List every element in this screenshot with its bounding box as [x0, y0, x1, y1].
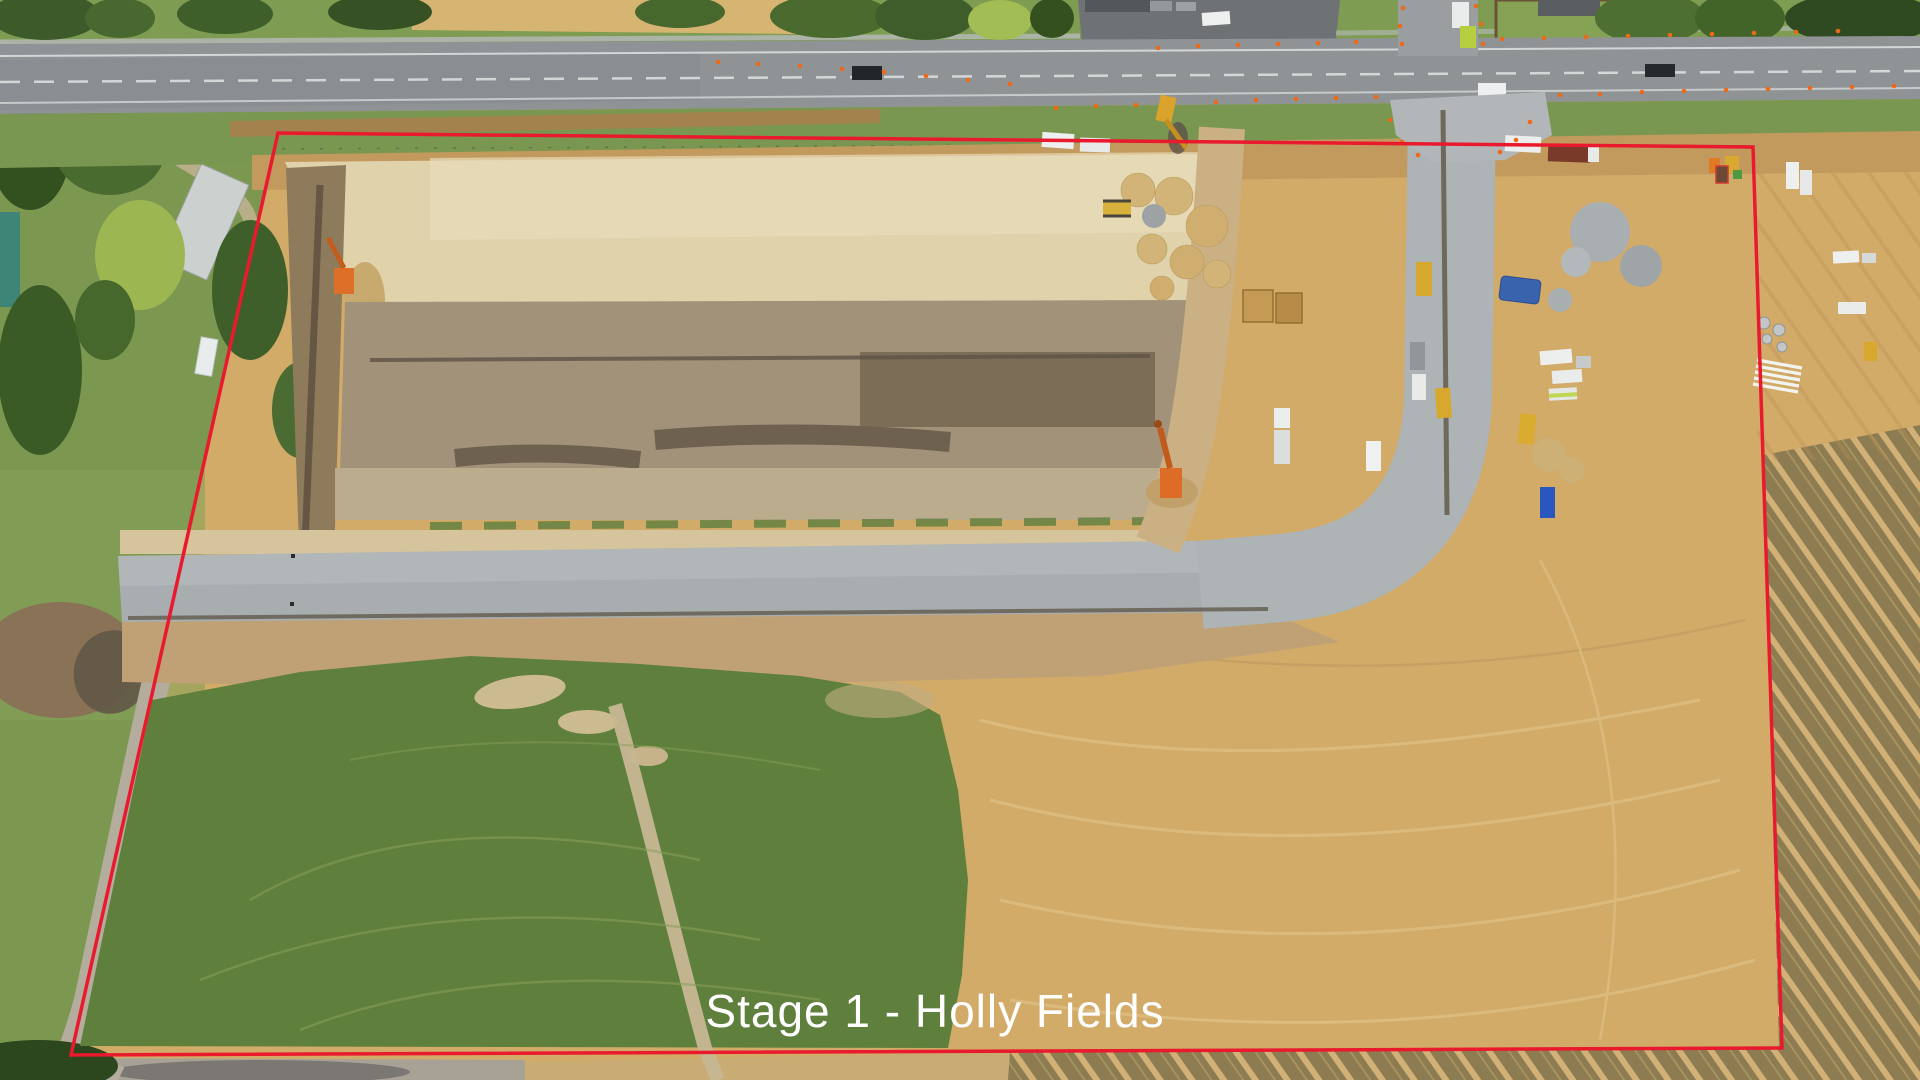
stage-label: Stage 1 - Holly Fields: [705, 984, 1164, 1038]
parked-gray-car: [1150, 1, 1172, 11]
traffic-cone: [1134, 103, 1139, 108]
traffic-cone: [1398, 24, 1403, 29]
traffic-cone: [1640, 90, 1645, 95]
white-van-outside: [1838, 302, 1866, 314]
traffic-cone: [1500, 37, 1505, 42]
gray-truck: [1410, 342, 1425, 370]
traffic-cone: [1766, 87, 1771, 92]
traffic-cone: [840, 67, 845, 72]
white-van: [1412, 374, 1426, 400]
trailer: [1576, 356, 1591, 368]
traffic-cone: [1276, 42, 1281, 47]
stubble-light-area: [1757, 140, 1920, 460]
scraped-patch: [558, 710, 618, 734]
traffic-cone: [1584, 35, 1589, 40]
topsoil-windrow: [455, 453, 640, 460]
top-stubble-patch: [408, 0, 800, 34]
lime-traffic-truck: [1460, 26, 1476, 48]
traffic-cone: [1598, 92, 1603, 97]
graded-subgrade-band: [335, 468, 1163, 520]
traffic-cone: [1054, 106, 1059, 111]
sand-pile: [1559, 457, 1585, 483]
mini-digger: [1864, 342, 1877, 361]
tree-cluster: [968, 0, 1032, 40]
gray-aggregate-pile: [1142, 204, 1166, 228]
flatbed-truck-load: [1548, 145, 1591, 162]
traffic-cone: [1808, 86, 1813, 91]
topsoil-windrow: [655, 434, 950, 442]
traffic-cone: [1400, 42, 1405, 47]
traffic-cone: [1668, 33, 1673, 38]
traffic-cone: [1836, 29, 1841, 34]
traffic-cone: [1214, 100, 1219, 105]
traffic-cone: [1388, 118, 1393, 123]
gravel-pile: [1620, 245, 1662, 287]
parked-gray-car: [1176, 2, 1196, 11]
bulldozer-body: [1103, 200, 1131, 217]
traffic-cone: [1724, 88, 1729, 93]
white-ute: [1552, 369, 1583, 384]
aerial-photo: Stage 1 - Holly Fields: [0, 0, 1920, 1080]
traffic-cone: [882, 70, 887, 75]
white-ute-outside: [1786, 162, 1799, 189]
traffic-cone: [1196, 44, 1201, 49]
yellow-digger: [1435, 387, 1452, 418]
red-framed-bin: [1716, 166, 1728, 183]
black-suv: [1645, 64, 1675, 77]
wheel-loader: [1517, 413, 1536, 445]
traffic-cone: [1514, 138, 1519, 143]
white-van: [1539, 349, 1572, 366]
excavator-bucket: [1154, 420, 1162, 428]
flatbed-truck-cab: [1588, 147, 1599, 162]
traffic-cone: [1850, 85, 1855, 90]
white-ute-trailer: [1833, 250, 1860, 263]
traffic-cone: [1558, 93, 1563, 98]
sand-pile: [1203, 260, 1231, 288]
blue-tarp-stack: [1499, 276, 1542, 305]
traffic-cone: [1401, 6, 1406, 11]
white-truck-sideroad: [1452, 2, 1469, 28]
traffic-cone: [1479, 22, 1484, 27]
traffic-cone: [1528, 120, 1533, 125]
white-car: [1366, 441, 1381, 471]
bulldozer: [1103, 200, 1131, 217]
gravel-pile: [1548, 288, 1572, 312]
sand-pile: [1137, 234, 1167, 264]
traffic-cone: [1316, 41, 1321, 46]
traffic-cone: [966, 78, 971, 83]
traffic-cone: [1254, 98, 1259, 103]
excavator-body: [1160, 468, 1182, 498]
sand-pile: [1186, 205, 1228, 247]
traffic-cone: [1008, 82, 1013, 87]
tree-cluster: [212, 220, 288, 360]
parked-white-car: [1202, 11, 1231, 26]
traffic-cone: [1374, 95, 1379, 100]
white-truck-cab: [1274, 408, 1290, 428]
traffic-cone: [1710, 32, 1715, 37]
dark-topsoil-zone: [860, 352, 1155, 427]
pale-pad-highlight: [430, 152, 1205, 240]
survey-mark: [290, 602, 294, 606]
trailer: [1862, 253, 1876, 263]
scraped-patch: [825, 682, 935, 718]
black-van: [852, 66, 882, 80]
survey-mark: [291, 554, 295, 558]
traffic-cone: [1354, 40, 1359, 45]
manhole-riser: [1762, 334, 1772, 344]
house-teal-roof: [0, 212, 20, 307]
tree-cluster: [75, 280, 135, 360]
traffic-cone: [1236, 43, 1241, 48]
traffic-cone: [1498, 150, 1503, 155]
green-plant: [1733, 170, 1742, 179]
traffic-cone: [1752, 31, 1757, 36]
traffic-cone: [1682, 89, 1687, 94]
gravel-pile: [1561, 247, 1591, 277]
traffic-cone: [756, 62, 761, 67]
traffic-cone: [1294, 97, 1299, 102]
house-roof: [1538, 0, 1600, 16]
traffic-cone: [1481, 42, 1486, 47]
white-truck-body: [1274, 430, 1290, 464]
traffic-cone: [1626, 34, 1631, 39]
blue-car: [1540, 487, 1555, 518]
traffic-cone: [1892, 84, 1897, 89]
traffic-cone: [924, 74, 929, 79]
excavator-body: [334, 268, 354, 294]
white-van-outside: [1800, 170, 1812, 195]
house-roof: [1085, 0, 1150, 12]
traffic-cone: [1542, 36, 1547, 41]
timber-frame: [1243, 290, 1273, 322]
manhole-riser: [1773, 324, 1785, 336]
traffic-cone: [1156, 46, 1161, 51]
sand-pile: [1170, 245, 1204, 279]
manhole-riser: [1777, 342, 1787, 352]
traffic-cone: [1416, 153, 1421, 158]
traffic-cone: [1334, 96, 1339, 101]
traffic-cone: [1474, 4, 1479, 9]
sand-pile: [1150, 276, 1174, 300]
traffic-cone: [1094, 104, 1099, 109]
white-ute-on-road: [1478, 83, 1506, 96]
traffic-cone: [798, 64, 803, 69]
timber-frame: [1276, 293, 1302, 323]
traffic-cone: [1794, 30, 1799, 35]
traffic-cone: [716, 60, 721, 65]
excavator-on-trench: [1416, 262, 1432, 296]
tree-cluster: [0, 285, 82, 455]
